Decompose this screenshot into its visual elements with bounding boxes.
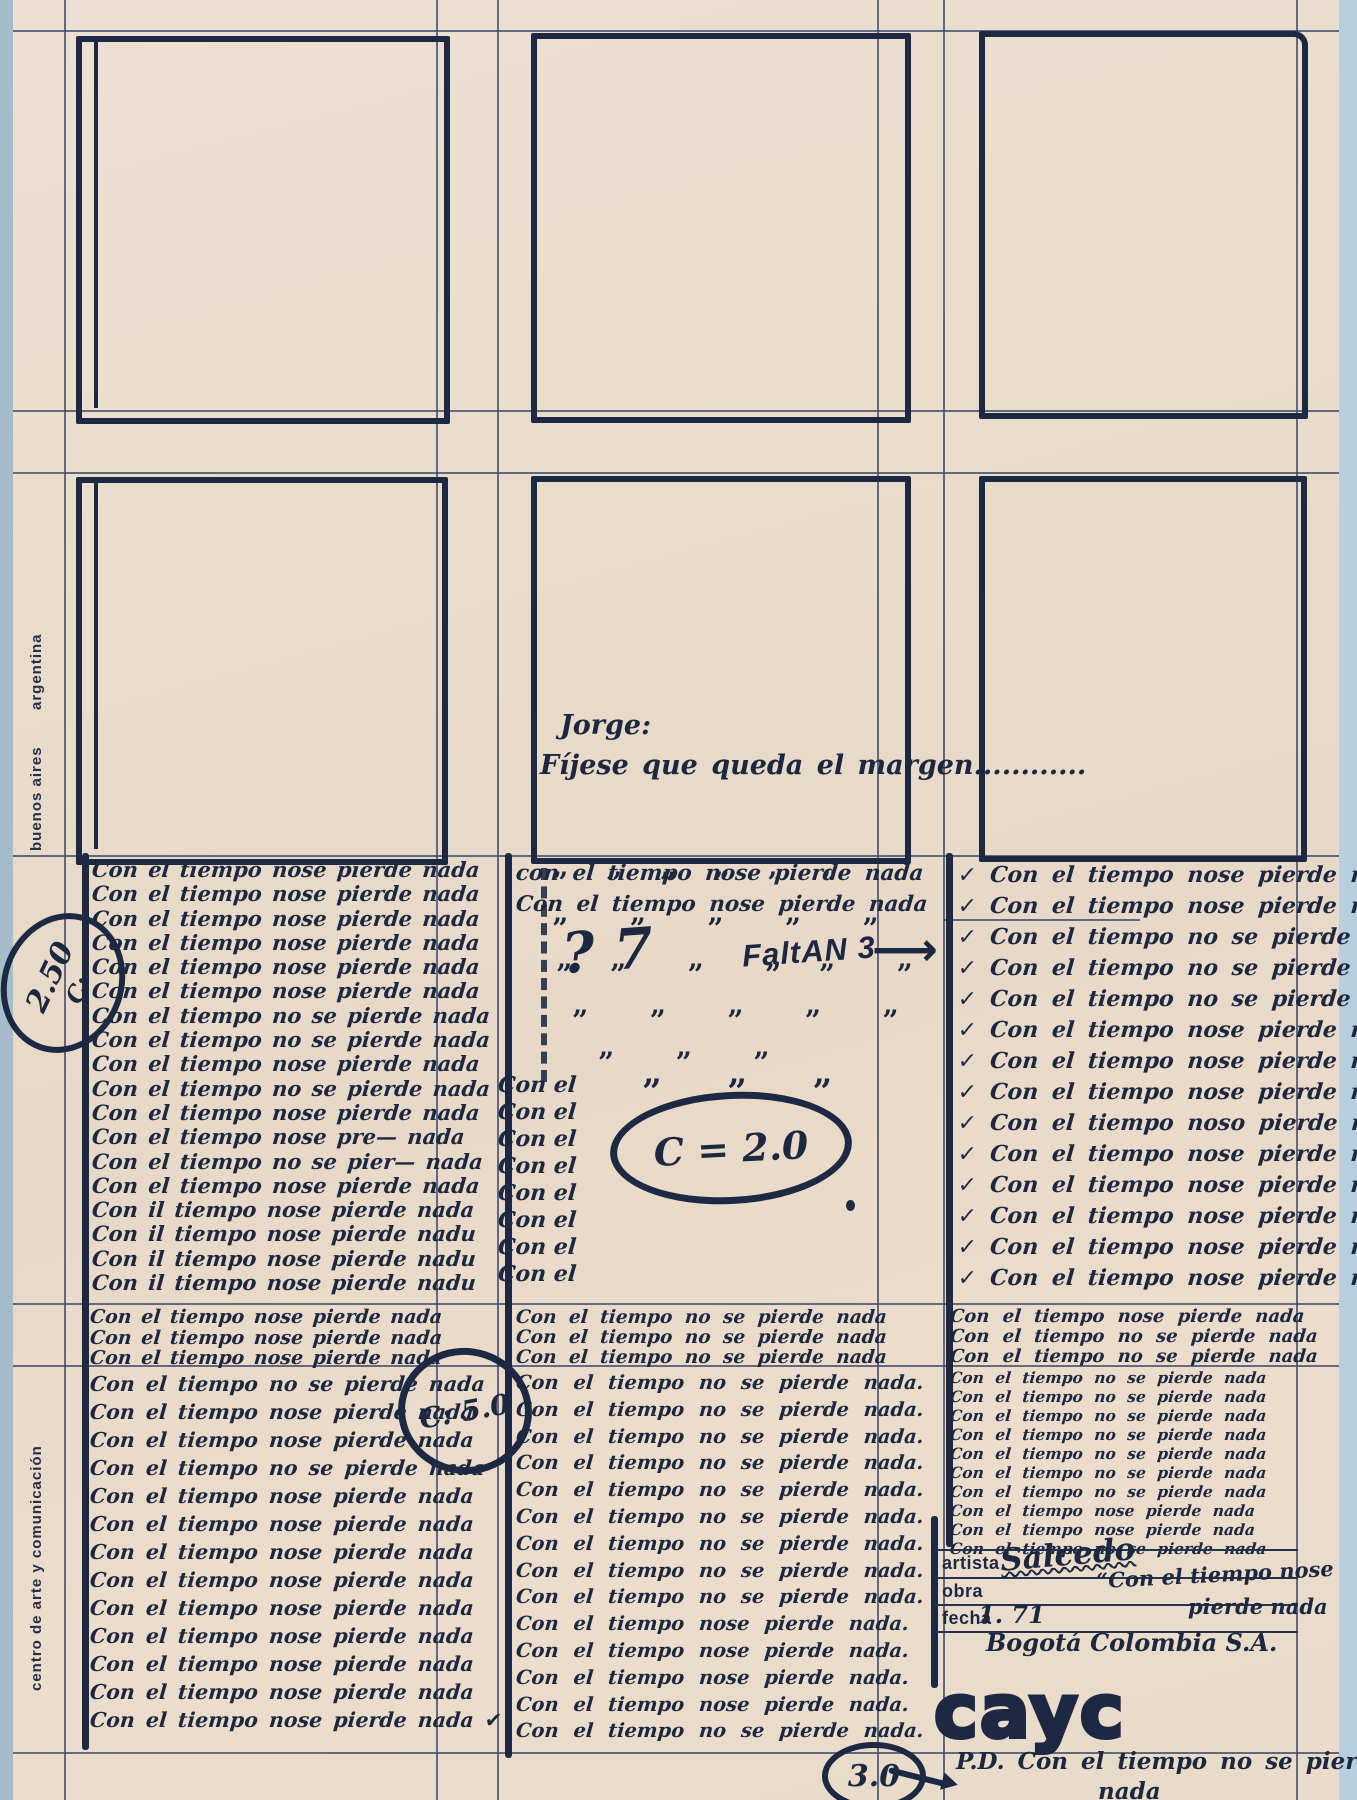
handwritten-line: Con el tiempo nose pierde nada xyxy=(89,1650,436,1678)
grid-vline-gutter1-b xyxy=(497,0,499,1800)
handwritten-line: Con el tiempo no se pierde nada. xyxy=(515,1450,897,1477)
hand-frame-row2-col3 xyxy=(979,476,1307,862)
handwritten-line: Con el tiempo no se pierde nada. xyxy=(515,1584,897,1611)
handwritten-line: Con el tiempo no se pierde nada. xyxy=(515,1477,897,1504)
handwritten-line: Con el tiempo nose pierde nada ✔ xyxy=(89,1706,436,1734)
handwritten-line: Con el tiempo nose pierde nada xyxy=(949,1520,1336,1539)
handwritten-line: ✓ Con el tiempo nose pierde nada xyxy=(957,1015,1342,1046)
handwritten-line: Con el tiempo no se pierde nada xyxy=(949,1347,1336,1367)
handwritten-line: Con il tiempo nose pierde nadu xyxy=(91,1271,438,1295)
form-city: Bogotá Colombia S.A. xyxy=(986,1628,1277,1657)
grade-c50-text: C: 5.0 xyxy=(417,1387,512,1435)
handwritten-line: Con el tiempo nose pierde nada xyxy=(89,1622,436,1650)
note-jorge-message: Fíjese que queda el margen............ xyxy=(540,750,1086,781)
grade-circle-c30: 3.0 xyxy=(822,1742,926,1800)
handwritten-line: Con el xyxy=(497,1180,609,1207)
handwritten-line: ✓ Con el tiempo nose pierde nada xyxy=(957,1232,1342,1263)
form-label-obra: obra xyxy=(942,1581,983,1602)
hand-frame-row1-col1-double-edge xyxy=(94,40,98,408)
handwritten-line: Con el tiempo nose pierde nada. xyxy=(515,1611,897,1638)
handwritten-line: ✓ Con el tiempo nose pierde nada xyxy=(957,1139,1342,1170)
handwritten-line: ✓ Con el tiempo nose pierde nada xyxy=(957,1201,1342,1232)
col1-text-block-2: Con el tiempo nose pierde nadaCon el tie… xyxy=(90,1307,435,1369)
handwritten-line: Con el tiempo nose pierde nada xyxy=(91,1101,438,1125)
handwritten-line: Con el tiempo nose pierde nada xyxy=(91,907,438,931)
cayc-scanned-sheet: argentina buenos aires centro de arte y … xyxy=(0,0,1357,1800)
handwritten-line: ✓ Con el tiempo nose pierde nada xyxy=(957,1263,1342,1294)
col1-text-block-1: Con el tiempo nose pierde nadaCon el tie… xyxy=(92,858,437,1295)
col2-text-block-3: Con el tiempo no se pierde nada.Con el t… xyxy=(516,1370,896,1745)
handwritten-line: Con el tiempo nose pierde nada xyxy=(89,1426,436,1454)
handwritten-line: Con il tiempo nose pierde nadu xyxy=(91,1222,438,1246)
handwritten-line: Con el tiempo nose pierde nada xyxy=(89,1348,436,1369)
handwritten-line: Con el tiempo nose pierde nada xyxy=(89,1566,436,1594)
handwritten-line: Con el tiempo no se pierde nada. xyxy=(515,1718,897,1745)
c30-arrow-head-icon xyxy=(940,1772,960,1793)
col1-text-block-3: Con el tiempo no se pierde nadaCon el ti… xyxy=(90,1370,435,1734)
handwritten-line: Con el tiempo nose pierde nada xyxy=(91,955,438,979)
handwritten-line: Con el tiempo no se pierde nada. xyxy=(515,1397,897,1424)
handwritten-line: Con el tiempo nose pierde nada. xyxy=(515,1638,897,1665)
hand-vline-form-edge xyxy=(931,1516,938,1688)
cayc-logo: cayc xyxy=(934,1682,1126,1742)
handwritten-line: Con el tiempo no se pierde nada. xyxy=(515,1424,897,1451)
grid-vline-gutter2-b xyxy=(943,0,945,1800)
ditto-marks-row: ” ” ” ” ” xyxy=(572,1004,913,1037)
hand-frame-row2-col2 xyxy=(531,476,911,864)
scan-edge-left xyxy=(0,0,13,1800)
handwritten-line: Con el tiempo no se pierde nada xyxy=(949,1327,1336,1347)
handwritten-line: Con el tiempo nose pierde nada xyxy=(949,1307,1336,1327)
grade-c30-text: 3.0 xyxy=(848,1759,900,1794)
handwritten-line: Con el tiempo no se pierde nada. xyxy=(515,1504,897,1531)
handwritten-line: ✓ Con el tiempo no se pierde nada xyxy=(957,953,1342,984)
hand-frame-row2-col1-double-edge xyxy=(94,481,98,849)
handwritten-line: Con el xyxy=(497,1099,609,1126)
handwritten-line: Con el tiempo no se pierde nada. xyxy=(515,1558,897,1585)
handwritten-line: Con el xyxy=(497,1072,609,1099)
col2-con-el-stack: Con elCon elCon elCon elCon elCon elCon … xyxy=(498,1072,608,1288)
handwritten-line: Con el xyxy=(497,1153,609,1180)
handwritten-line: Con el tiempo nose pierde nada xyxy=(89,1594,436,1622)
handwritten-line: Con el xyxy=(497,1126,609,1153)
handwritten-line: Con el xyxy=(497,1207,609,1234)
handwritten-line: ✓ Con el tiempo nose pierde nada xyxy=(957,891,1342,922)
handwritten-line: Con el tiempo nose pierde nada xyxy=(91,1052,438,1076)
form-value-obra-cont: pierde nada xyxy=(1188,1594,1328,1619)
grid-vline-margin xyxy=(64,0,66,1800)
ditto-marks-row: ” ” ” ” ” ” xyxy=(552,866,851,899)
handwritten-line: Con el tiempo nose pierde nada xyxy=(89,1398,436,1426)
handwritten-line: Con el tiempo no se pierde nada. xyxy=(515,1531,897,1558)
handwritten-line: Con el tiempo nose pre— nada xyxy=(91,1125,438,1149)
handwritten-line: ✓ Con el tiempo nose pierde nada xyxy=(957,1046,1342,1077)
handwritten-line: Con el tiempo nose pierde nada xyxy=(91,931,438,955)
handwritten-line: Con el tiempo nose pierde nada xyxy=(89,1538,436,1566)
grid-hline-band-a xyxy=(13,1303,1339,1305)
handwritten-line: Con el tiempo no se pierde nada xyxy=(91,1004,438,1028)
pd-note-line1: P.D. Con el tiempo no se pierde xyxy=(956,1748,1357,1775)
sidebar-text-argentina: argentina xyxy=(28,624,45,720)
handwritten-line: ✓ Con el tiempo nose pierde nada xyxy=(957,1077,1342,1108)
handwritten-line: Con el tiempo nose pierde nada xyxy=(89,1328,436,1349)
handwritten-line: Con el tiempo no se pierde nada xyxy=(91,1028,438,1052)
hand-vline-col2 xyxy=(505,853,512,1758)
hand-frame-row2-col1 xyxy=(76,477,448,865)
handwritten-line: ✓ Con el tiempo nose pierde nada xyxy=(957,860,1342,891)
handwritten-line: Con el tiempo nose pierde nada xyxy=(89,1307,436,1328)
handwritten-line: Con el tiempo nose pierde nada xyxy=(91,858,438,882)
grid-hline-row2-top xyxy=(13,472,1339,474)
handwritten-line: Con el tiempo no se pierde nada xyxy=(949,1387,1336,1406)
handwritten-line: Con el tiempo no se pierde nada xyxy=(949,1482,1336,1501)
handwritten-line: Con el tiempo no se pierde nada xyxy=(515,1328,897,1348)
handwritten-line: Con el tiempo no se pierde nada xyxy=(515,1348,897,1368)
handwritten-line: Con el tiempo nose pierde nada. xyxy=(515,1665,897,1692)
form-label-artista: artista xyxy=(942,1553,1000,1574)
handwritten-line: Con il tiempo nose pierde nada xyxy=(91,1198,438,1222)
faltan-arrow-icon: ⟶ xyxy=(872,922,938,976)
handwritten-line: Con el tiempo nose pierde nada xyxy=(91,979,438,1003)
handwritten-line: Con el tiempo no se pierde nada xyxy=(949,1425,1336,1444)
pd-note-line2: nada xyxy=(1098,1778,1161,1800)
sidebar-text-buenos-aires: buenos aires xyxy=(28,738,45,860)
handwritten-line: Con el tiempo no se pierde nada xyxy=(89,1454,436,1482)
handwritten-line: Con el tiempo no se pierde nada xyxy=(949,1368,1336,1387)
faltan-question-marks: ? 7 xyxy=(560,915,656,987)
handwritten-line: Con el xyxy=(497,1234,609,1261)
handwritten-line: Con el tiempo no se pier— nada xyxy=(91,1150,438,1174)
sidebar-text-centro: centro de arte y comunicación xyxy=(28,1444,45,1692)
handwritten-line: Con el tiempo nose pierde nada xyxy=(91,882,438,906)
handwritten-line: Con el tiempo no se pierde nada. xyxy=(515,1370,897,1397)
handwritten-line: ✓ Con el tiempo no se pierde nada xyxy=(957,922,1342,953)
handwritten-line: Con el tiempo no se pierde nada xyxy=(515,1308,897,1328)
handwritten-line: Con el tiempo nose pierde nada xyxy=(91,1174,438,1198)
handwritten-line: Con el tiempo nose pierde nada. xyxy=(515,1692,897,1719)
col3-text-block-3: Con el tiempo no se pierde nadaCon el ti… xyxy=(950,1368,1335,1558)
handwritten-line: ✓ Con el tiempo noso pierde nada xyxy=(957,1108,1342,1139)
col3-text-block-2: Con el tiempo nose pierde nadaCon el tie… xyxy=(950,1307,1335,1366)
hand-frame-row1-col1 xyxy=(76,36,450,424)
ink-dot xyxy=(846,1200,855,1211)
col3-text-block-1: ✓ Con el tiempo nose pierde nada✓ Con el… xyxy=(958,860,1340,1294)
note-jorge-salutation: Jorge: xyxy=(560,710,651,741)
handwritten-line: Con el tiempo nose pierde nada xyxy=(89,1678,436,1706)
handwritten-line: Con el xyxy=(497,1261,609,1288)
hand-frame-row1-col3 xyxy=(979,31,1308,419)
handwritten-line: Con el tiempo no se pierde nada xyxy=(949,1406,1336,1425)
handwritten-line: Con el tiempo nose pierde nada xyxy=(89,1510,436,1538)
grade-c20-text: C = 2.0 xyxy=(653,1121,810,1174)
handwritten-line: Con el tiempo no se pierde nada xyxy=(949,1444,1336,1463)
handwritten-line: ✓ Con el tiempo nose pierde nada xyxy=(957,1170,1342,1201)
hand-frame-row1-col2 xyxy=(531,33,911,423)
form-value-fecha: 1. 71 xyxy=(978,1600,1045,1629)
handwritten-line: Con el tiempo no se pierde nada xyxy=(91,1077,438,1101)
handwritten-line: Con el tiempo no se pierde nada xyxy=(949,1463,1336,1482)
handwritten-line: Con el tiempo no se pierde nada xyxy=(89,1370,436,1398)
col2-text-block-2: Con el tiempo no se pierde nadaCon el ti… xyxy=(516,1308,896,1367)
handwritten-line: Con el tiempo nose pierde nada xyxy=(949,1501,1336,1520)
handwritten-line: ✓ Con el tiempo no se pierde nada xyxy=(957,984,1342,1015)
handwritten-line: Con el tiempo nose pierde nada xyxy=(89,1482,436,1510)
handwritten-line: Con il tiempo nose pierde nadu xyxy=(91,1247,438,1271)
